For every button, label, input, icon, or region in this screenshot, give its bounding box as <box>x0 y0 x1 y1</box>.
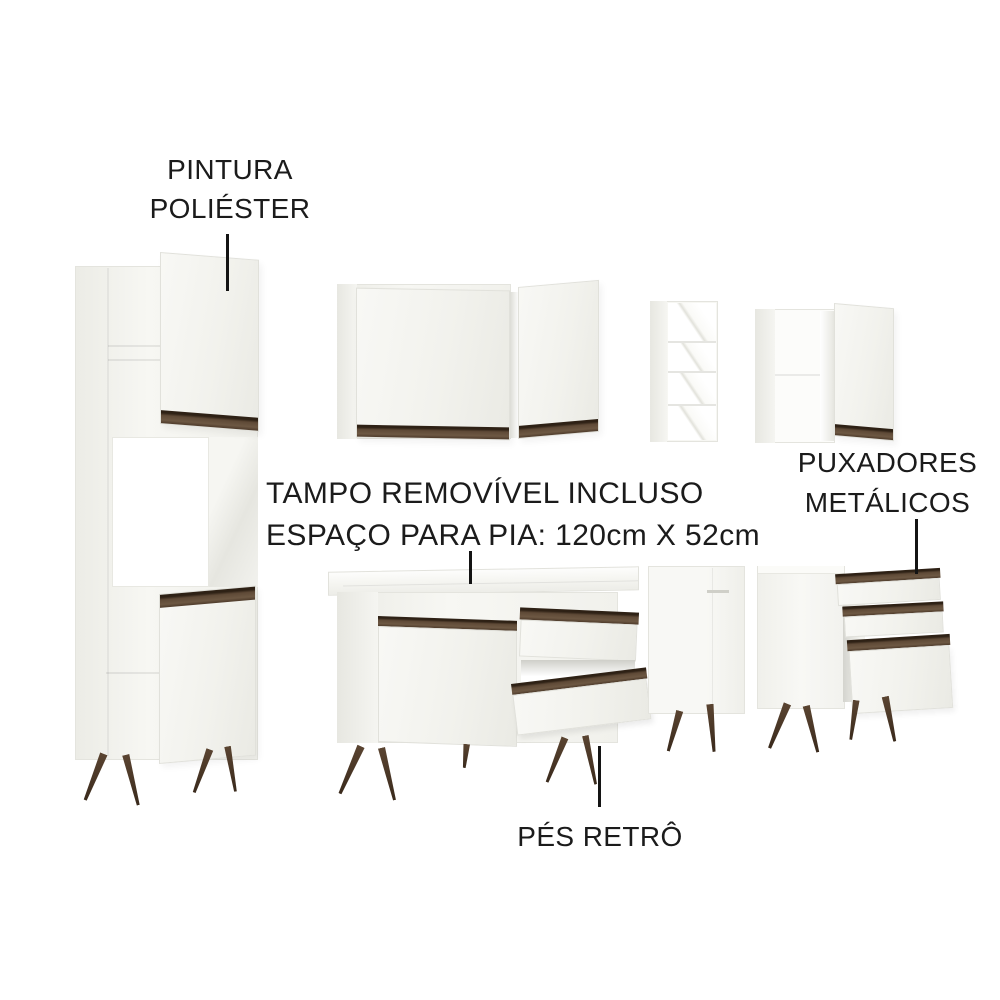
label-pes-retro: PÉS RETRÔ <box>495 817 705 857</box>
drawer-cabinet-body <box>757 566 845 709</box>
sink-cabinet-door <box>378 616 517 747</box>
label-line: TAMPO REMOVÍVEL INCLUSO <box>266 473 806 515</box>
wall-cabinet-right-door-open <box>834 303 894 441</box>
shelf-line <box>668 404 716 406</box>
label-line: POLIÉSTER <box>105 189 355 228</box>
shelf-line <box>668 371 716 373</box>
narrow-cabinet-handle-hint <box>707 590 729 593</box>
retro-leg <box>459 743 472 768</box>
door-handle-strip <box>835 424 893 440</box>
tall-cabinet-shelf <box>108 345 162 347</box>
drawer-3 <box>847 634 954 714</box>
shelf-cell <box>668 406 716 440</box>
label-line: PÉS RETRÔ <box>495 817 705 857</box>
label-tampo-espaco-pia: TAMPO REMOVÍVEL INCLUSO ESPAÇO PARA PIA:… <box>266 473 806 557</box>
shelf-line <box>668 341 716 343</box>
pointer-line-countertop <box>469 551 472 584</box>
shelf-cell <box>668 303 716 341</box>
door-handle-strip <box>519 419 598 438</box>
retro-leg <box>800 704 823 753</box>
tall-cabinet-top-door <box>160 252 259 432</box>
sink-door-face <box>378 626 517 747</box>
label-pintura-poliester: PINTURA POLIÉSTER <box>105 150 355 228</box>
tall-cabinet-bottom-door <box>159 586 256 764</box>
tall-cabinet-shelf <box>108 359 162 361</box>
tall-cabinet-shelf <box>106 672 160 674</box>
label-line: ESPAÇO PARA PIA: 120cm X 52cm <box>266 515 806 557</box>
drawer-1 <box>835 568 942 606</box>
narrow-cabinet-body <box>648 566 745 714</box>
retro-leg <box>662 709 685 753</box>
drawer-face <box>849 645 954 714</box>
pointer-line-paint <box>226 234 229 291</box>
drawer-2 <box>842 601 944 637</box>
drawer-face <box>844 611 944 637</box>
label-line: PINTURA <box>105 150 355 189</box>
wall-cabinet-door-open <box>518 280 599 439</box>
retro-leg <box>376 746 401 801</box>
drawer-cabinet-top <box>758 566 844 574</box>
sink-cabinet-drawer-top <box>518 607 639 662</box>
door-handle-strip <box>357 425 509 440</box>
shelf-unit-side <box>650 301 667 442</box>
pointer-line-feet <box>598 746 601 807</box>
interior-shadow <box>820 311 834 441</box>
drawer-face <box>519 619 638 661</box>
label-line: PUXADORES <box>770 443 1000 483</box>
sink-cabinet-side <box>337 592 378 743</box>
tall-cabinet-edge-line <box>107 268 109 756</box>
pointer-line-handles <box>915 519 918 574</box>
shelf-cell <box>668 343 716 371</box>
retro-leg <box>334 744 367 797</box>
oven-opening <box>112 437 209 587</box>
shelf-cell <box>668 373 716 404</box>
kitchen-set-annotated-image: PINTURA POLIÉSTER TAMPO REMOVÍVEL INCLUS… <box>0 0 1000 1000</box>
retro-leg <box>120 753 144 806</box>
label-line: METÁLICOS <box>770 483 1000 523</box>
countertop-edge-line <box>343 580 638 586</box>
wall-cabinet-side <box>337 284 357 439</box>
oven-opening-shadow <box>209 437 258 587</box>
label-puxadores-metalicos: PUXADORES METÁLICOS <box>770 443 1000 523</box>
wall-cabinet-right-side <box>755 309 775 443</box>
wall-cabinet-door-closed <box>356 288 510 441</box>
